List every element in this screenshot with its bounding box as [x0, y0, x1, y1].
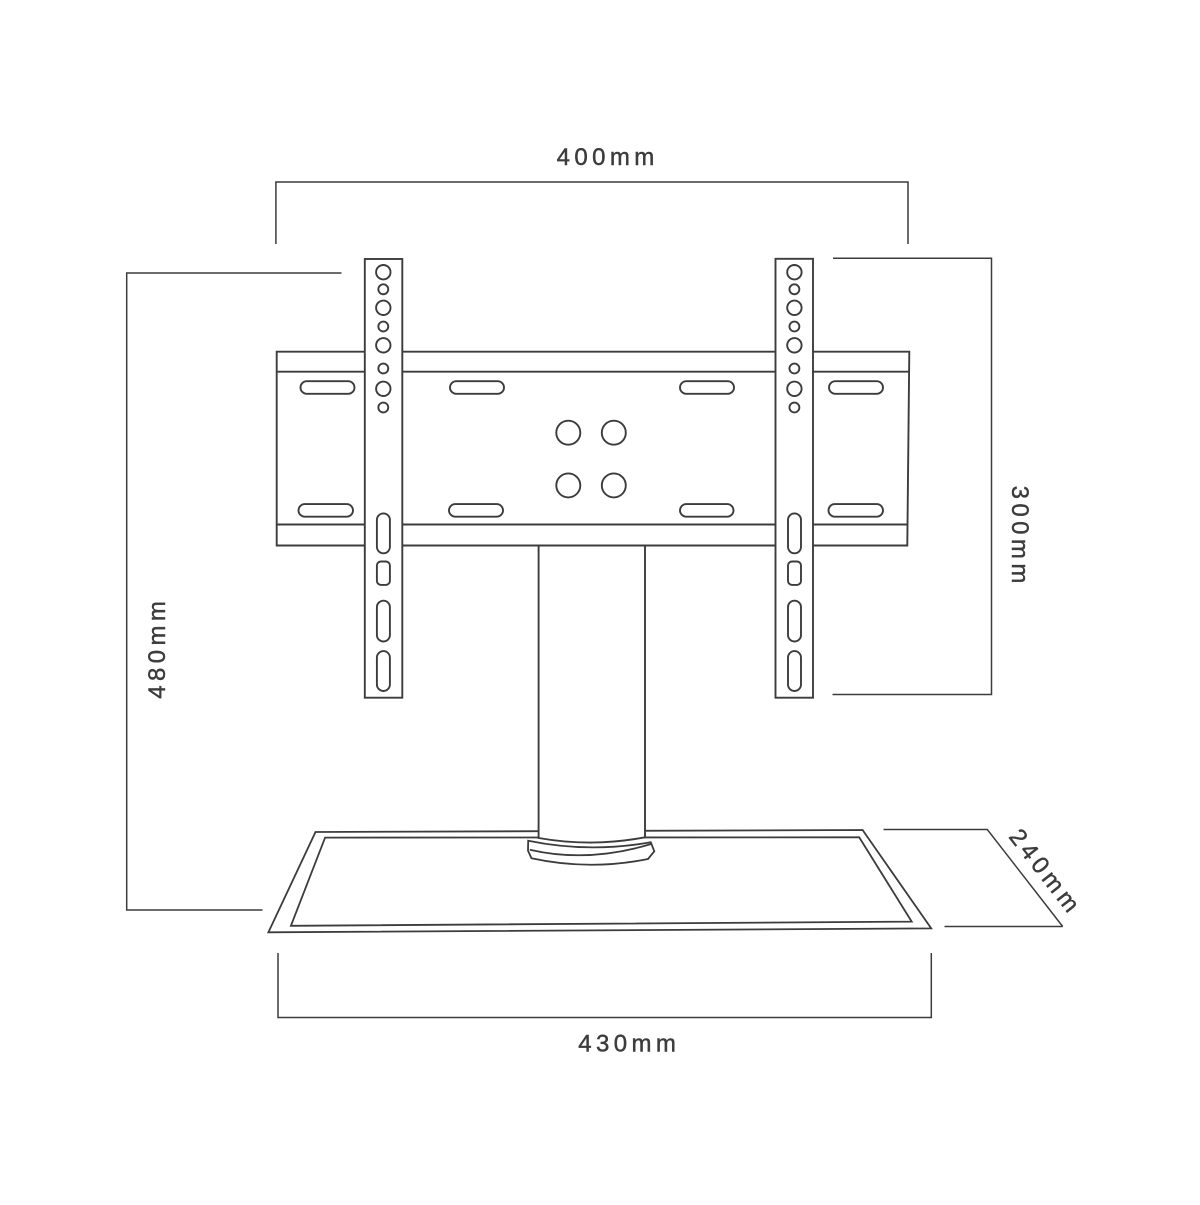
- svg-text:240mm: 240mm: [1003, 824, 1087, 921]
- svg-text:480mm: 480mm: [144, 597, 171, 699]
- svg-text:400mm: 400mm: [557, 144, 659, 171]
- svg-text:300mm: 300mm: [1006, 486, 1033, 588]
- svg-text:430mm: 430mm: [578, 1031, 680, 1058]
